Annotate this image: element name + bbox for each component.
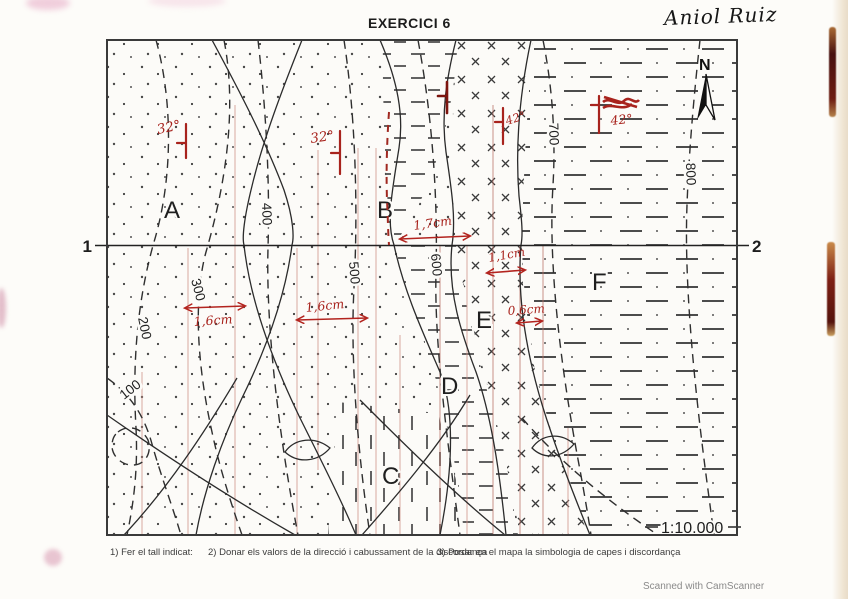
contour-label-600: 600: [428, 253, 445, 277]
distance-value-a: 1,6cm: [193, 311, 233, 329]
scanned-exercise-sheet: 100 200 300 400 500 600 700 800 A B C D …: [0, 0, 848, 599]
section-point-1: 1: [83, 237, 92, 256]
zone-label-d: D: [441, 373, 458, 400]
geologic-map-figure: 100 200 300 400 500 600 700 800 A B C D …: [0, 0, 848, 599]
zone-label-a: A: [164, 197, 180, 224]
contour-label-700: 700: [546, 123, 562, 146]
pink-smudge: [44, 549, 62, 566]
zone-label-c: C: [382, 463, 399, 490]
handwritten-author-name: Aniol Ruiz: [664, 2, 778, 30]
scan-edge-streak: [829, 27, 836, 117]
north-label: N: [699, 57, 711, 74]
camscanner-watermark: Scanned with CamScanner: [643, 581, 764, 592]
contour-label-400: 400: [259, 203, 275, 226]
zone-label-e: E: [476, 307, 492, 334]
scan-edge-streak: [827, 242, 835, 336]
contour-label-500: 500: [346, 261, 363, 285]
section-point-2: 2: [752, 237, 761, 256]
contour-label-800: 800: [683, 163, 699, 186]
dip-value-f: 42°: [609, 111, 634, 128]
zone-label-b: B: [377, 197, 393, 224]
dip-value-b: 32°: [309, 128, 335, 147]
task-1: 1) Fer el tall indicat:: [110, 547, 193, 558]
page-title: EXERCICI 6: [368, 15, 451, 31]
zone-label-f: F: [592, 269, 607, 296]
task-3: 3) Posar en el mapa la simbologia de cap…: [437, 547, 680, 558]
distance-value-f: 0,6cm: [507, 301, 545, 318]
